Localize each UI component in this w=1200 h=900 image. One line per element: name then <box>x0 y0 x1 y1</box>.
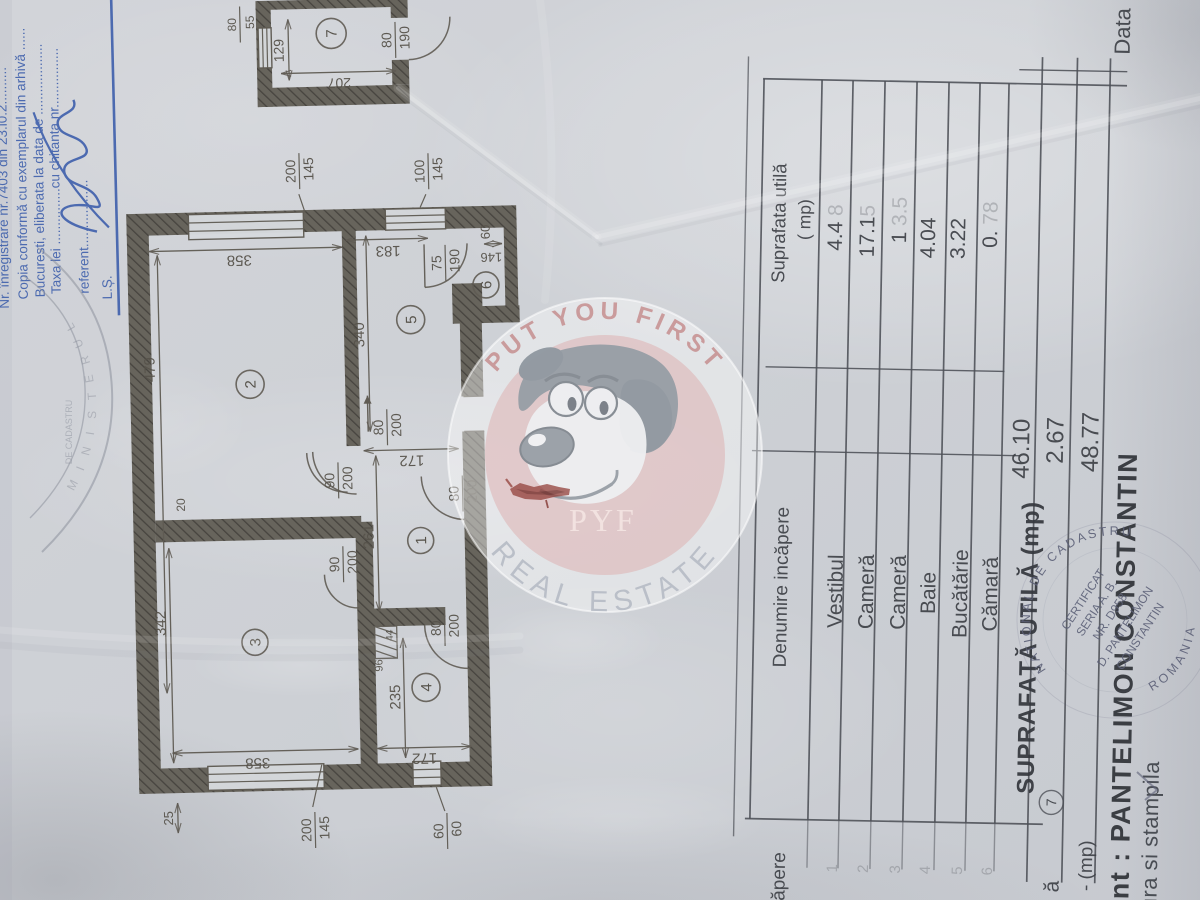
svg-text:ura si stampila: ura si stampila <box>1136 760 1164 900</box>
svg-text:190: 190 <box>396 26 413 50</box>
svg-text:190: 190 <box>446 249 463 273</box>
svg-text:Cămară: Cămară <box>979 556 1003 631</box>
svg-text:7: 7 <box>1043 798 1059 806</box>
svg-text:4: 4 <box>418 683 435 692</box>
svg-text:Cameră: Cameră <box>855 554 879 629</box>
svg-text:145: 145 <box>300 157 317 181</box>
svg-text:Suprafata utilă: Suprafata utilă <box>767 163 790 283</box>
svg-text:200: 200 <box>339 466 356 490</box>
svg-text:60: 60 <box>478 225 493 240</box>
svg-text:0.: 0. <box>979 230 1002 248</box>
svg-text:7: 7 <box>323 29 340 38</box>
svg-text:ă: ă <box>1041 880 1064 892</box>
svg-text:358: 358 <box>227 251 252 269</box>
svg-text:4.4: 4.4 <box>824 221 848 251</box>
svg-text:55: 55 <box>243 15 257 29</box>
svg-text:Vestibul: Vestibul <box>824 554 848 628</box>
svg-text:129: 129 <box>270 39 287 63</box>
svg-text:479: 479 <box>141 357 159 382</box>
svg-text:2: 2 <box>855 864 872 873</box>
svg-text:5: 5 <box>949 866 966 875</box>
svg-text:60: 60 <box>430 823 446 839</box>
svg-text:Denumire incăpere: Denumire incăpere <box>770 507 794 668</box>
svg-text:2: 2 <box>242 380 259 389</box>
svg-text:Cameră: Cameră <box>887 555 911 630</box>
svg-text:207: 207 <box>327 75 351 92</box>
svg-text:17.1: 17.1 <box>856 216 880 257</box>
svg-text:1: 1 <box>413 536 430 545</box>
svg-text:261: 261 <box>360 524 378 549</box>
svg-text:80: 80 <box>378 32 394 48</box>
svg-text:200: 200 <box>445 614 462 638</box>
svg-text:3.22: 3.22 <box>947 218 971 259</box>
svg-text:ncăpere: ncăpere <box>768 852 790 900</box>
svg-text:3.5: 3.5 <box>888 197 912 227</box>
svg-text:46.10: 46.10 <box>1007 418 1035 479</box>
svg-text:200: 200 <box>282 159 299 183</box>
svg-text:172: 172 <box>399 451 424 469</box>
svg-text:6: 6 <box>478 281 495 290</box>
svg-text:235: 235 <box>387 684 405 709</box>
svg-text:- (mp): - (mp) <box>1076 840 1098 891</box>
svg-text:342: 342 <box>152 611 170 636</box>
svg-text:200: 200 <box>344 550 361 574</box>
svg-text:PYF: PYF <box>569 502 637 538</box>
svg-text:340: 340 <box>351 322 369 347</box>
svg-text:4: 4 <box>917 866 934 875</box>
svg-text:78: 78 <box>979 201 1002 225</box>
svg-text:S: S <box>85 411 99 419</box>
svg-text:200: 200 <box>388 413 405 437</box>
svg-text:75: 75 <box>428 255 444 271</box>
svg-text:172: 172 <box>412 749 437 767</box>
svg-text:145: 145 <box>316 816 333 840</box>
svg-text:Data: Data <box>1110 7 1136 55</box>
svg-text:4.04: 4.04 <box>917 217 941 259</box>
svg-text:183: 183 <box>375 242 400 260</box>
svg-text:96: 96 <box>373 659 385 672</box>
svg-text:200: 200 <box>298 818 315 842</box>
svg-text:25: 25 <box>161 811 176 826</box>
svg-text:146: 146 <box>480 250 502 265</box>
svg-text:Baie: Baie <box>917 572 941 614</box>
svg-text:1: 1 <box>888 231 911 243</box>
svg-text:5: 5 <box>403 315 420 324</box>
svg-text:( mp): ( mp) <box>794 199 815 240</box>
svg-text:1: 1 <box>824 864 841 873</box>
svg-text:DE CADASTRU: DE CADASTRU <box>64 400 74 465</box>
svg-text:80: 80 <box>370 419 386 435</box>
svg-text:Bucuresti, eliberata la data d: Bucuresti, eliberata la data de ........… <box>30 44 48 298</box>
svg-text:5: 5 <box>856 205 879 217</box>
svg-text:2.67: 2.67 <box>1042 417 1070 464</box>
svg-text:358: 358 <box>245 754 270 772</box>
svg-text:90: 90 <box>321 472 337 488</box>
svg-text:60: 60 <box>448 821 464 837</box>
svg-text:145: 145 <box>429 157 446 181</box>
svg-text:Bucătărie: Bucătărie <box>948 549 973 638</box>
svg-text:48.77: 48.77 <box>1077 412 1105 473</box>
svg-text:100: 100 <box>411 159 428 183</box>
svg-text:80: 80 <box>225 17 239 31</box>
svg-text:20: 20 <box>174 498 188 512</box>
svg-text:80: 80 <box>428 620 444 636</box>
svg-text:referent..................: referent.................. <box>75 180 91 294</box>
svg-text:L.Ș.: L.Ș. <box>100 275 115 299</box>
svg-text:90: 90 <box>326 556 342 572</box>
svg-text:3: 3 <box>887 865 904 874</box>
svg-text:8: 8 <box>824 204 847 216</box>
svg-text:6: 6 <box>979 867 996 876</box>
